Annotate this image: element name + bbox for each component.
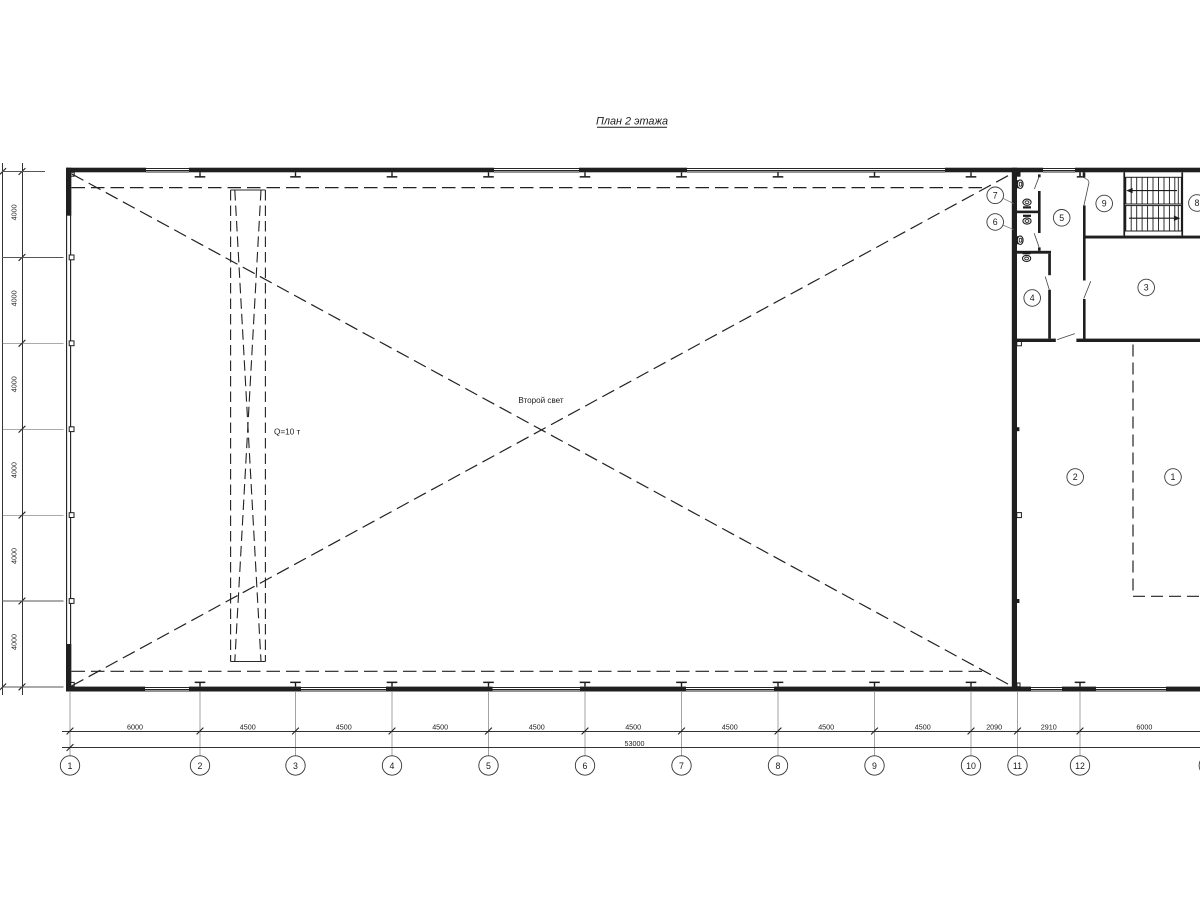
svg-text:4000: 4000 [10, 548, 19, 564]
svg-text:4: 4 [390, 761, 395, 771]
svg-text:5: 5 [486, 761, 491, 771]
svg-text:План 2 этажа: План 2 этажа [596, 116, 668, 128]
svg-text:6000: 6000 [127, 722, 143, 731]
svg-text:4: 4 [1030, 293, 1035, 303]
svg-text:4500: 4500 [240, 722, 256, 731]
svg-text:2: 2 [198, 761, 203, 771]
svg-text:2910: 2910 [1041, 722, 1057, 731]
svg-text:2: 2 [1073, 472, 1078, 482]
svg-text:4000: 4000 [10, 376, 19, 392]
svg-text:7: 7 [679, 761, 684, 771]
svg-text:2090: 2090 [986, 722, 1002, 731]
svg-text:4000: 4000 [10, 204, 19, 220]
svg-text:8: 8 [1194, 198, 1199, 208]
svg-text:9: 9 [1102, 199, 1107, 209]
svg-text:12: 12 [1075, 761, 1085, 771]
svg-text:1: 1 [68, 761, 73, 771]
svg-text:4500: 4500 [432, 722, 448, 731]
svg-text:4000: 4000 [10, 634, 19, 650]
svg-text:7: 7 [993, 190, 998, 200]
svg-text:6000: 6000 [1136, 722, 1152, 731]
svg-text:5: 5 [1059, 213, 1064, 223]
svg-text:6: 6 [993, 217, 998, 227]
svg-text:8: 8 [776, 761, 781, 771]
svg-text:Q=10 т: Q=10 т [274, 428, 301, 437]
svg-text:9: 9 [872, 761, 877, 771]
svg-text:Второй свет: Второй свет [518, 396, 564, 405]
svg-text:24000: 24000 [0, 432, 2, 452]
svg-text:11: 11 [1013, 761, 1022, 771]
svg-text:4500: 4500 [722, 722, 738, 731]
svg-text:4500: 4500 [336, 722, 352, 731]
svg-text:4000: 4000 [10, 290, 19, 306]
svg-text:6: 6 [583, 761, 588, 771]
svg-text:4500: 4500 [915, 722, 931, 731]
svg-text:4500: 4500 [818, 722, 834, 731]
svg-text:53000: 53000 [625, 739, 645, 748]
svg-text:3: 3 [293, 761, 298, 771]
svg-text:4500: 4500 [625, 722, 641, 731]
svg-text:4000: 4000 [10, 462, 19, 478]
svg-text:4500: 4500 [529, 722, 545, 731]
svg-text:10: 10 [966, 761, 976, 771]
svg-text:3: 3 [1144, 283, 1149, 293]
svg-text:1: 1 [1171, 472, 1176, 482]
